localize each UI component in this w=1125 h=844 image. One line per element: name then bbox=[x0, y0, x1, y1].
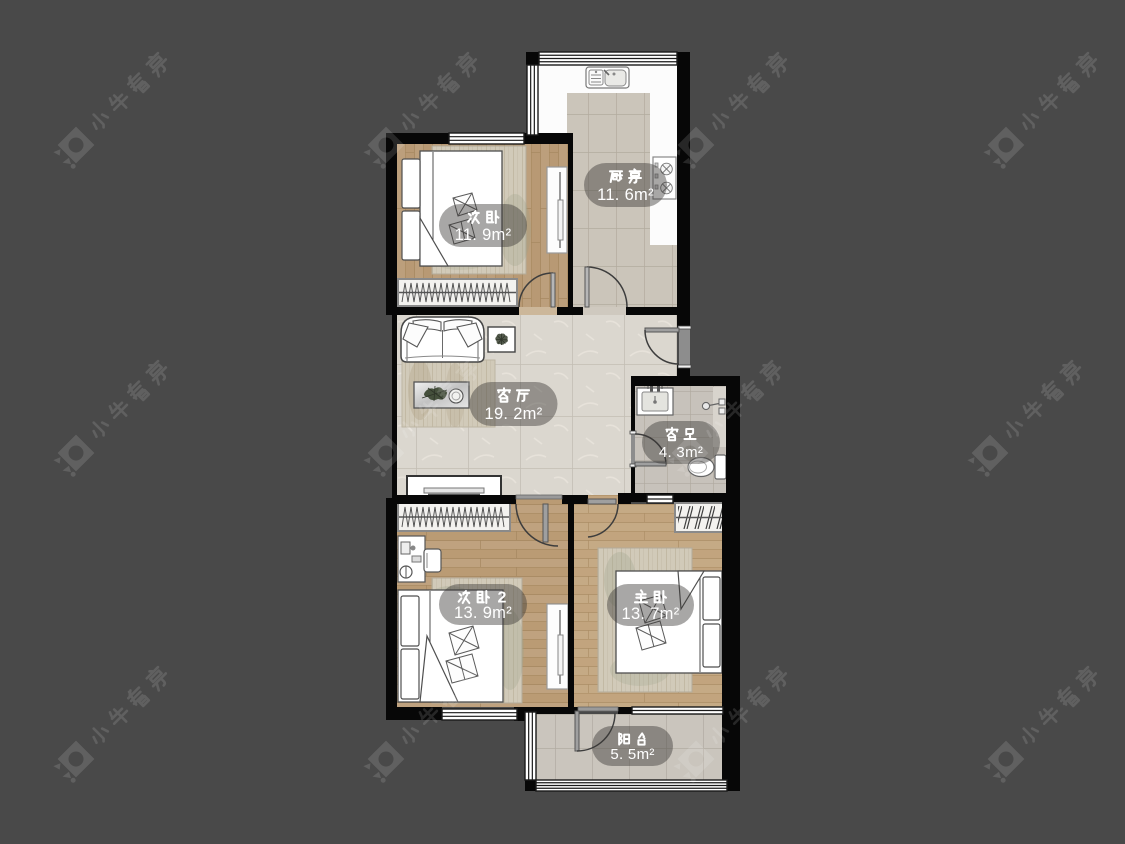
svg-text:11. 9m²: 11. 9m² bbox=[455, 226, 512, 244]
svg-text:19. 2m²: 19. 2m² bbox=[484, 405, 542, 423]
svg-text:13. 7m²: 13. 7m² bbox=[621, 605, 679, 623]
svg-text:5. 5m²: 5. 5m² bbox=[610, 746, 654, 763]
svg-text:13. 9m²: 13. 9m² bbox=[454, 604, 512, 622]
svg-text:11. 6m²: 11. 6m² bbox=[597, 186, 654, 204]
